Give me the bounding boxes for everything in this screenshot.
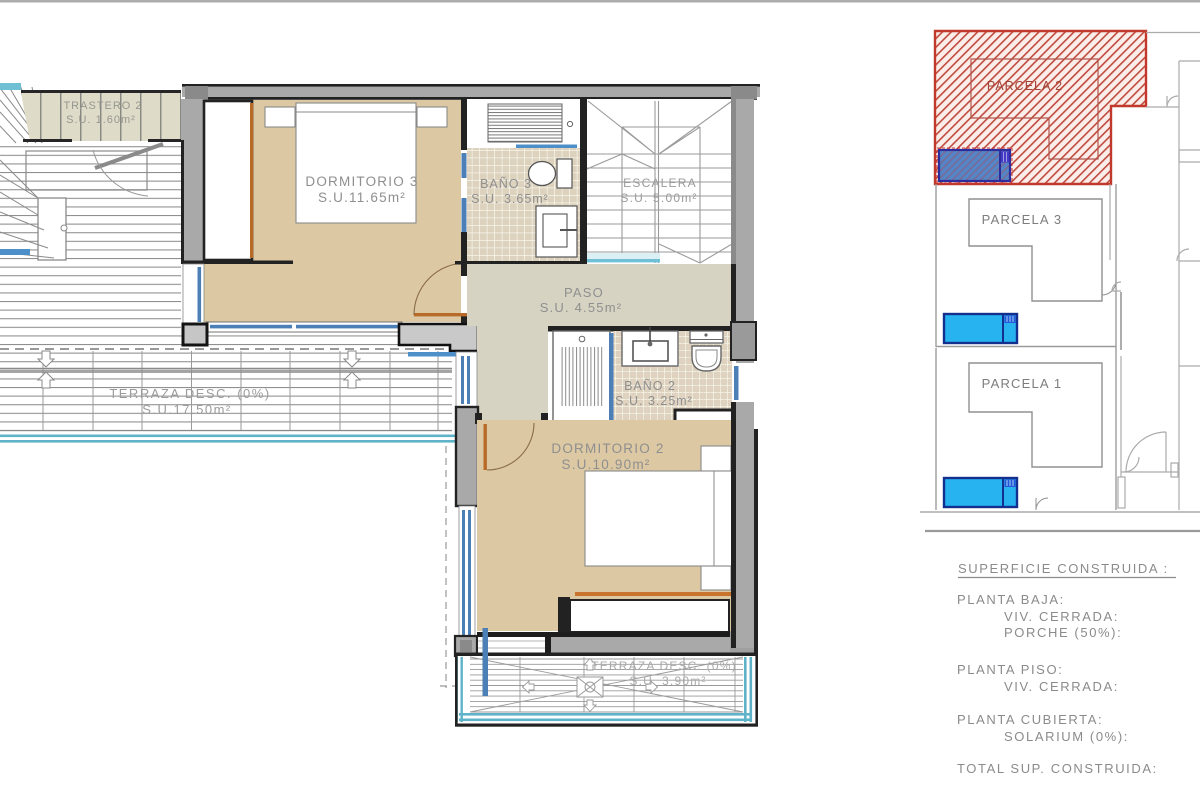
svg-text:S.U. 3.65m²: S.U. 3.65m²	[471, 192, 549, 206]
svg-text:TERRAZA DESC. (0%): TERRAZA DESC. (0%)	[591, 659, 737, 673]
svg-text:PARCELA 1: PARCELA 1	[982, 376, 1063, 391]
svg-text:S.U.10.90m²: S.U.10.90m²	[562, 457, 651, 472]
svg-text:PARCELA 3: PARCELA 3	[982, 212, 1063, 227]
svg-text:S.U. 5.00m²: S.U. 5.00m²	[620, 191, 697, 205]
svg-text:PORCHE (50%):: PORCHE (50%):	[1004, 625, 1122, 640]
svg-text:SOLARIUM (0%):: SOLARIUM (0%):	[1004, 729, 1129, 744]
svg-text:S.U.11.65m²: S.U.11.65m²	[318, 190, 406, 205]
svg-text:S.U. 3.90m²: S.U. 3.90m²	[629, 674, 706, 688]
svg-text:VIV. CERRADA:: VIV. CERRADA:	[1004, 679, 1119, 694]
svg-text:SUPERFICIE CONSTRUIDA :: SUPERFICIE CONSTRUIDA :	[958, 561, 1169, 576]
svg-text:ESCALERA: ESCALERA	[623, 176, 697, 190]
svg-text:BAÑO 2: BAÑO 2	[624, 379, 676, 393]
svg-text:S.U. 1.60m²: S.U. 1.60m²	[66, 114, 136, 126]
svg-text:PASO: PASO	[564, 285, 604, 300]
svg-text:S.U.17.50m²: S.U.17.50m²	[142, 402, 231, 417]
svg-text:PARCELA 2: PARCELA 2	[987, 79, 1063, 93]
svg-text:PLANTA BAJA:: PLANTA BAJA:	[957, 592, 1065, 607]
svg-text:S.U. 3.25m²: S.U. 3.25m²	[615, 394, 693, 408]
svg-text:S.U. 4.55m²: S.U. 4.55m²	[540, 300, 623, 315]
svg-text:PLANTA CUBIERTA:: PLANTA CUBIERTA:	[957, 712, 1103, 727]
svg-text:DORMITORIO 2: DORMITORIO 2	[551, 441, 664, 456]
svg-text:PLANTA PISO:: PLANTA PISO:	[957, 662, 1063, 677]
svg-text:DORMITORIO 3: DORMITORIO 3	[305, 174, 418, 189]
svg-text:VIV. CERRADA:: VIV. CERRADA:	[1004, 609, 1119, 624]
svg-text:TOTAL SUP. CONSTRUIDA:: TOTAL SUP. CONSTRUIDA:	[957, 761, 1158, 776]
svg-text:TRASTERO 2: TRASTERO 2	[63, 100, 142, 112]
svg-text:BAÑO 3: BAÑO 3	[480, 177, 532, 191]
svg-text:TERRAZA DESC. (0%): TERRAZA DESC. (0%)	[109, 386, 270, 401]
